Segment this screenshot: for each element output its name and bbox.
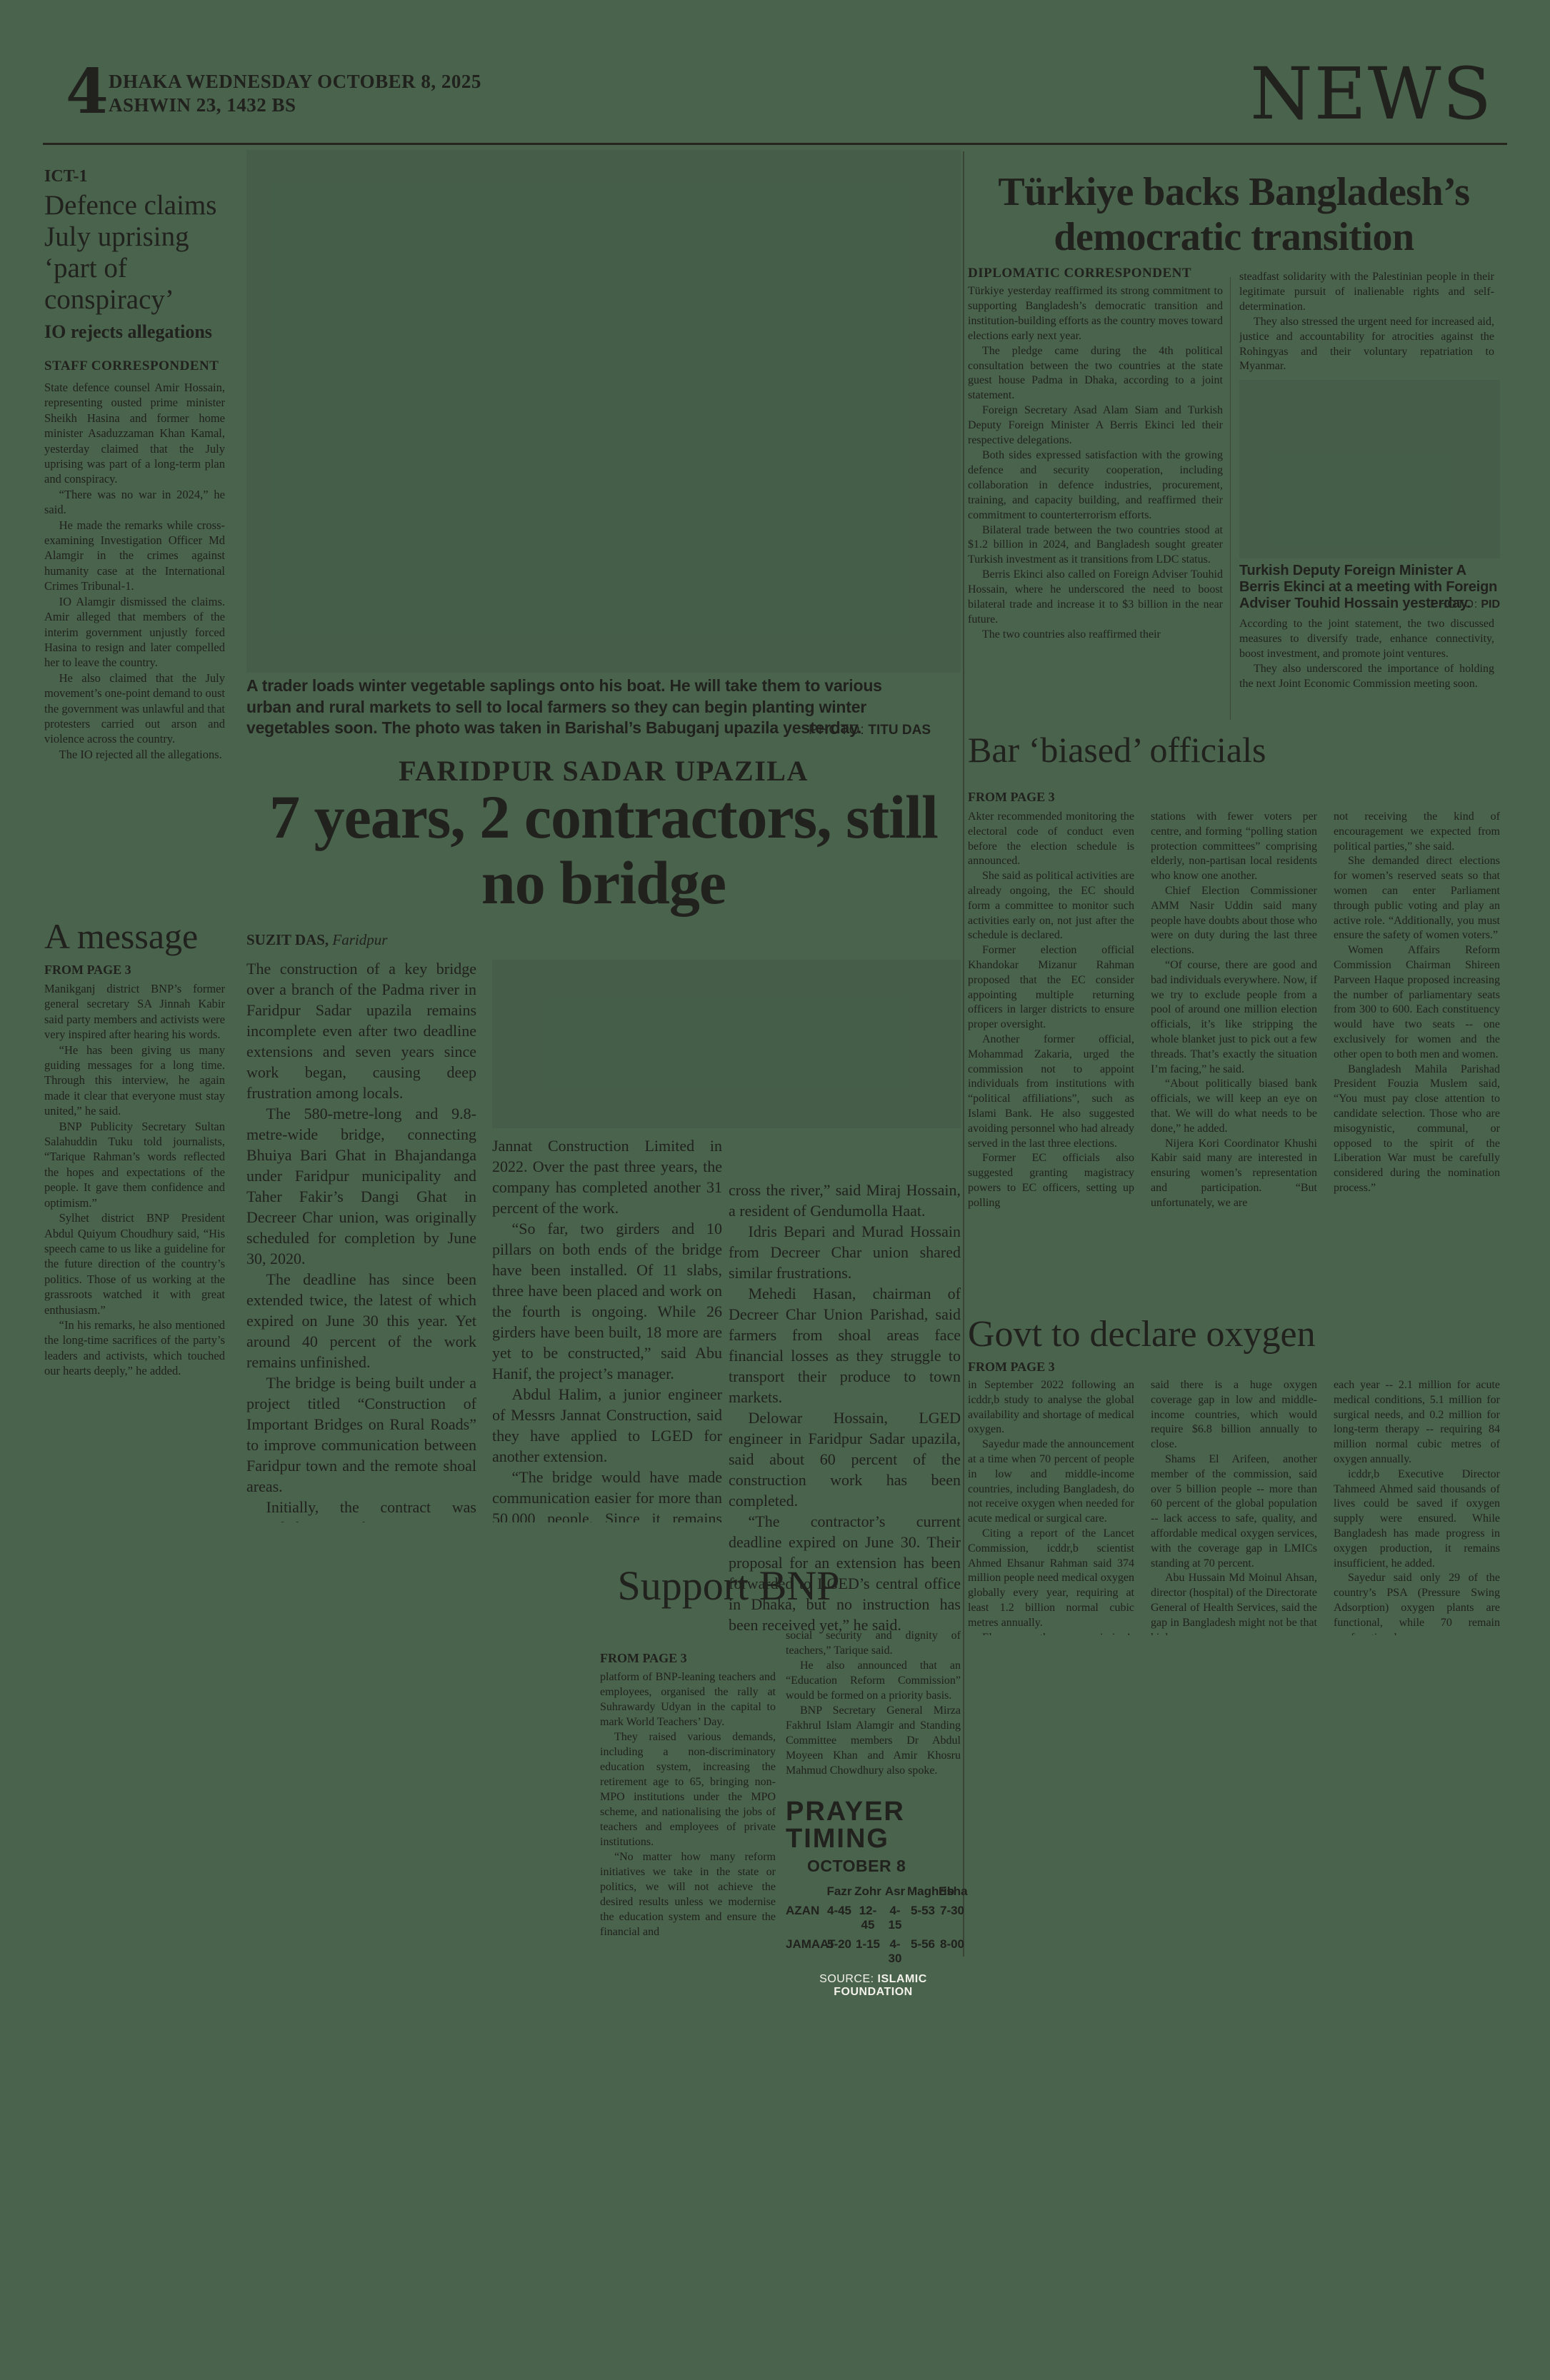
oxygen-col3: each year -- 2.1 million for acute medic… (1334, 1378, 1500, 1635)
azan-zohr: 12-45 (853, 1904, 883, 1932)
bnp-headline: Support BNP (593, 1564, 864, 1608)
bridge-col1: The construction of a key bridge over a … (246, 958, 476, 1522)
ict-kicker: ICT-1 (44, 167, 87, 186)
jamaat-esha: 8-00 (939, 1937, 966, 1966)
turkiye-col2-top: steadfast solidarity with the Palestinia… (1239, 270, 1494, 377)
jamaat-zohr: 1-15 (853, 1937, 883, 1966)
prayer-col-maghrib: Maghrib (907, 1884, 939, 1899)
oxygen-col1: in September 2022 following an icddr,b s… (968, 1378, 1134, 1635)
ict-headline: Defence claims July uprising ‘part of co… (44, 190, 227, 316)
lead-photo (246, 150, 961, 673)
turkiye-caption-row: Turkish Deputy Foreign Minister A Berris… (1239, 563, 1500, 613)
message-headline: A message (44, 917, 198, 955)
bridge-byline-name: SUZIT DAS, (246, 931, 329, 948)
prayer-col-asr: Asr (883, 1884, 907, 1899)
bar-col1: Akter recommended monitoring the elector… (968, 810, 1134, 1310)
prayer-title-line1: PRAYER (786, 1798, 961, 1825)
photo-credit-name: TITU DAS (868, 723, 931, 738)
ict-body: State defence counsel Amir Hossain, repr… (44, 380, 225, 898)
prayer-date: OCTOBER 8 (807, 1857, 961, 1876)
newspaper-page: 4 DHAKA WEDNESDAY OCTOBER 8, 2025 ASHWIN… (0, 0, 1550, 2380)
ict-byline: STAFF CORRESPONDENT (44, 358, 219, 374)
oxygen-kicker: FROM PAGE 3 (968, 1360, 1055, 1375)
ict-deck: IO rejects allegations (44, 321, 212, 343)
azan-maghrib: 5-53 (907, 1904, 939, 1932)
message-kicker: FROM PAGE 3 (44, 963, 131, 978)
turkiye-col2-bottom: According to the joint statement, the tw… (1239, 617, 1494, 724)
calendar-line: ASHWIN 23, 1432 BS (109, 94, 481, 117)
turkiye-photo (1239, 380, 1500, 558)
jamaat-asr: 4-30 (883, 1937, 907, 1966)
bnp-kicker: FROM PAGE 3 (600, 1651, 687, 1666)
lead-photo-credit: PHOTO: TITU DAS (809, 723, 931, 738)
masthead-date: DHAKA WEDNESDAY OCTOBER 8, 2025 ASHWIN 2… (109, 70, 481, 117)
prayer-row-jamaat-label: JAMAAT (786, 1937, 826, 1966)
bnp-col2: social security and dignity of teachers,… (786, 1628, 961, 1782)
bar-kicker: FROM PAGE 3 (968, 790, 1055, 805)
prayer-header-empty (786, 1884, 826, 1899)
turkiye-credit-label: PHOTO: (1430, 598, 1478, 611)
message-body: Manikganj district BNP’s former general … (44, 981, 225, 1502)
page-number: 4 (66, 60, 109, 124)
date-line: DHAKA WEDNESDAY OCTOBER 8, 2025 (109, 70, 481, 94)
masthead-rule (43, 143, 1507, 145)
middle-right-divider (963, 151, 964, 1957)
azan-esha: 7-30 (939, 1904, 966, 1932)
section-title: NEWS (1143, 57, 1493, 131)
bnp-col1: platform of BNP-leaning teachers and emp… (600, 1669, 776, 1952)
turkiye-credit-name: PID (1481, 598, 1500, 611)
bar-col3: not receiving the kind of encouragement … (1334, 810, 1500, 1310)
bridge-byline: SUZIT DAS, Faridpur (246, 931, 387, 949)
azan-asr: 4-15 (883, 1904, 907, 1932)
lead-photo-caption-row: A trader loads winter vegetable saplings… (246, 676, 961, 741)
bridge-byline-place: Faridpur (329, 931, 387, 948)
bridge-headline: 7 years, 2 contractors, still no bridge (264, 784, 943, 915)
prayer-table: Fazr Zohr Asr Maghrib Esha AZAN 4-45 12-… (786, 1884, 961, 1966)
bar-col2: stations with fewer voters per centre, a… (1151, 810, 1317, 1310)
turkiye-col1: Türkiye yesterday reaffirmed its strong … (968, 284, 1223, 713)
turkiye-headline: Türkiye backs Bangladesh’s democratic tr… (968, 170, 1500, 260)
prayer-col-zohr: Zohr (853, 1884, 883, 1899)
azan-fazr: 4-45 (826, 1904, 853, 1932)
turkiye-photo-credit: PHOTO: PID (1430, 598, 1500, 611)
oxygen-col2: said there is a huge oxygen coverage gap… (1151, 1378, 1317, 1635)
prayer-row-azan-label: AZAN (786, 1904, 826, 1932)
photo-credit-label: PHOTO: (809, 723, 865, 738)
prayer-title-line2: TIMING (786, 1825, 961, 1852)
prayer-source-label: SOURCE: (819, 1973, 874, 1985)
prayer-col-esha: Esha (939, 1884, 966, 1899)
turkiye-byline: DIPLOMATIC CORRESPONDENT (968, 266, 1191, 281)
turkiye-column-divider (1230, 277, 1231, 720)
bar-headline: Bar ‘biased’ officials (968, 730, 1266, 770)
prayer-col-fazr: Fazr (826, 1884, 853, 1899)
prayer-source: SOURCE: ISLAMIC FOUNDATION (786, 1973, 961, 1999)
oxygen-headline: Govt to declare oxygen (968, 1314, 1316, 1355)
prayer-box: PRAYER TIMING OCTOBER 8 Fazr Zohr Asr Ma… (786, 1798, 961, 1959)
jamaat-fazr: 5-20 (826, 1937, 853, 1966)
bridge-photo (492, 960, 961, 1128)
bridge-col2: Jannat Construction Limited in 2022. Ove… (492, 1135, 722, 1522)
jamaat-maghrib: 5-56 (907, 1937, 939, 1966)
